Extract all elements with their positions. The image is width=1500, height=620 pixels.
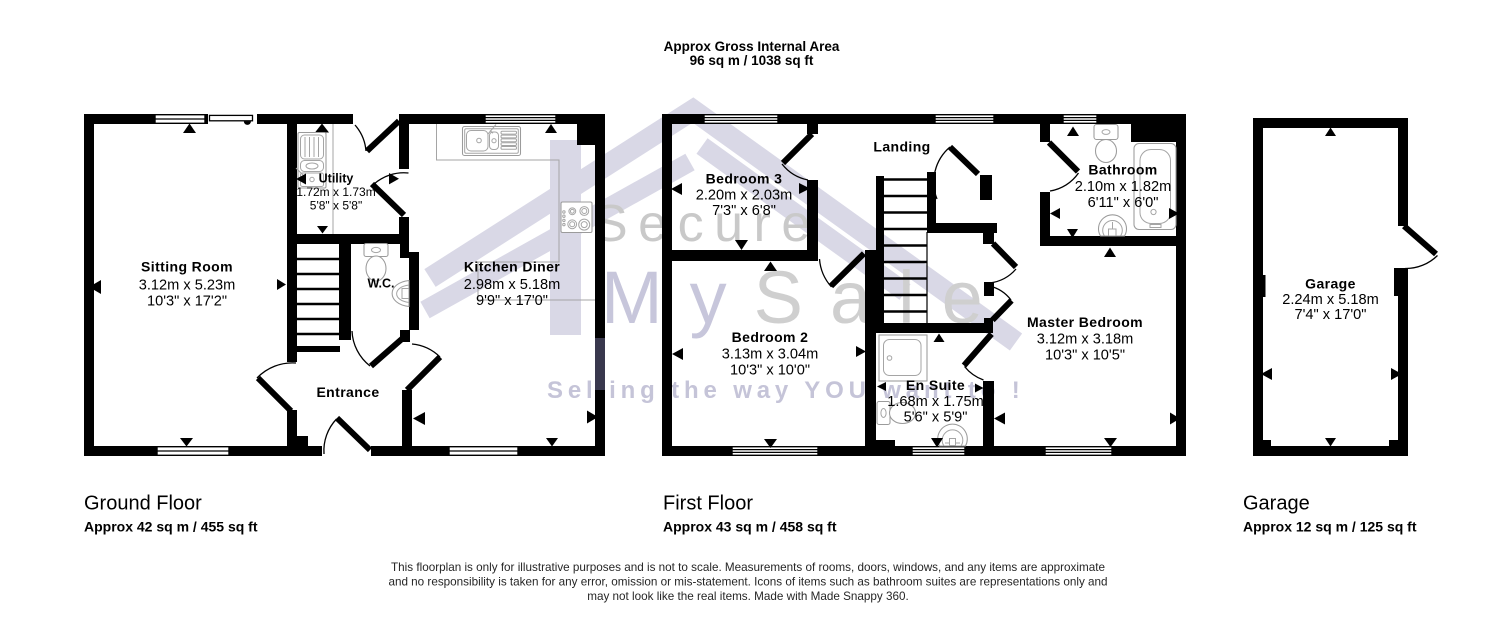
svg-text:2.24m x 5.18m: 2.24m x 5.18m (1282, 292, 1379, 308)
svg-text:Approx 42 sq m / 455 sq ft: Approx 42 sq m / 455 sq ft (84, 519, 258, 535)
svg-text:3.13m x 3.04m: 3.13m x 3.04m (722, 347, 819, 363)
svg-text:7'4" x 17'0": 7'4" x 17'0" (1295, 307, 1367, 323)
svg-text:may not look like the real ite: may not look like the real items. Made w… (587, 590, 909, 603)
svg-text:This floorplan is only for ill: This floorplan is only for illustrative … (391, 561, 1105, 574)
svg-text:Approx 12 sq m / 125 sq ft: Approx 12 sq m / 125 sq ft (1243, 519, 1417, 535)
svg-text:Bedroom 2: Bedroom 2 (732, 329, 809, 345)
svg-text:Ground Floor: Ground Floor (84, 493, 202, 515)
svg-text:3.12m x 3.18m: 3.12m x 3.18m (1037, 332, 1134, 348)
svg-text:Landing: Landing (873, 139, 930, 155)
svg-text:2.98m x 5.18m: 2.98m x 5.18m (464, 277, 561, 293)
svg-text:1.72m x 1.73m: 1.72m x 1.73m (296, 185, 375, 199)
svg-text:5'6" x 5'9": 5'6" x 5'9" (904, 410, 968, 426)
svg-text:2.20m x 2.03m: 2.20m x 2.03m (696, 188, 793, 204)
svg-text:Bathroom: Bathroom (1088, 162, 1157, 178)
svg-text:W.C.: W.C. (367, 277, 394, 291)
svg-text:Kitchen Diner: Kitchen Diner (464, 259, 560, 275)
svg-text:96 sq m / 1038 sq ft: 96 sq m / 1038 sq ft (690, 53, 814, 68)
svg-text:2.10m x 1.82m: 2.10m x 1.82m (1075, 179, 1172, 195)
svg-text:Approx Gross Internal Area: Approx Gross Internal Area (664, 39, 840, 54)
svg-text:Garage: Garage (1305, 276, 1356, 292)
svg-text:Entrance: Entrance (316, 384, 379, 400)
svg-text:10'3" x 10'0": 10'3" x 10'0" (730, 363, 810, 379)
svg-text:Sitting Room: Sitting Room (141, 259, 233, 275)
svg-text:7'3" x 6'8": 7'3" x 6'8" (712, 203, 776, 219)
svg-text:En Suite: En Suite (906, 377, 965, 393)
svg-text:and no responsibility is taken: and no responsibility is taken for any e… (388, 576, 1107, 589)
svg-text:Garage: Garage (1243, 493, 1310, 515)
svg-text:3.12m x 5.23m: 3.12m x 5.23m (139, 278, 236, 294)
svg-text:5'8" x 5'8": 5'8" x 5'8" (310, 199, 362, 213)
svg-text:10'3" x 17'2": 10'3" x 17'2" (147, 294, 227, 310)
svg-text:Approx 43 sq m / 458 sq ft: Approx 43 sq m / 458 sq ft (663, 519, 837, 535)
svg-text:Master Bedroom: Master Bedroom (1027, 314, 1143, 330)
svg-text:Secure: Secure (593, 195, 821, 253)
svg-text:First Floor: First Floor (663, 493, 753, 515)
svg-text:Bedroom 3: Bedroom 3 (706, 171, 783, 187)
svg-text:6'11" x 6'0": 6'11" x 6'0" (1088, 195, 1159, 211)
svg-text:10'3" x 10'5": 10'3" x 10'5" (1045, 348, 1125, 364)
svg-text:Utility: Utility (319, 172, 354, 186)
svg-text:1.68m x 1.75m: 1.68m x 1.75m (887, 394, 984, 410)
svg-text:9'9" x 17'0": 9'9" x 17'0" (476, 293, 548, 309)
